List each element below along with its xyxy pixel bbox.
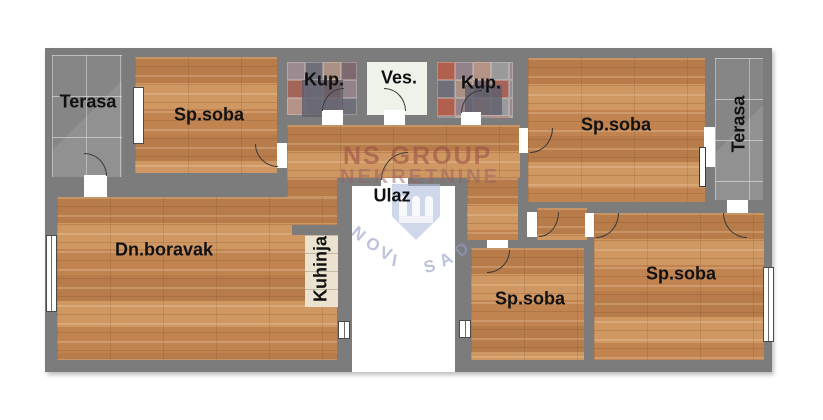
door-gap-spsoba4 [585, 213, 594, 237]
room-label-spsoba1: Sp.soba [174, 105, 244, 126]
bath-tile [437, 80, 455, 98]
bath-tile [437, 98, 455, 116]
door-gap-terasa-right [727, 200, 748, 213]
window-mullion [344, 322, 345, 338]
castle-tower-icon [412, 196, 420, 216]
window-entry-left [338, 321, 350, 339]
bath-tile [509, 116, 513, 118]
bath-tile [509, 98, 513, 116]
room-label-spsoba2: Sp.soba [581, 115, 651, 136]
room-floor-dnboravak [57, 197, 337, 360]
bath-tile [509, 62, 513, 80]
window-mullion [768, 268, 769, 341]
door-gap-spsoba2 [519, 128, 528, 153]
bath-tile [509, 80, 513, 98]
room-label-terasa-left: Terasa [60, 92, 117, 113]
window-mullion [465, 321, 466, 337]
room-label-dnboravak: Dn.boravak [115, 240, 213, 261]
balcony-door-spsoba1 [133, 87, 144, 144]
castle-base-icon [399, 216, 433, 223]
bath-tile [437, 116, 455, 118]
window-spsoba4 [763, 267, 774, 342]
kitchen-wall-stub [292, 225, 340, 235]
balcony-door-leaf-spsoba2 [699, 147, 706, 187]
room-label-ulaz: Ulaz [373, 186, 410, 207]
window-dnboravak [46, 235, 57, 312]
hallway-floor-connector [287, 178, 337, 197]
room-label-kup2: Kup. [461, 73, 501, 94]
door-gap-kup2 [461, 112, 481, 125]
floor-plan: NS GROUP NEKRETNINE Terasa Sp.soba Kup. … [0, 0, 823, 420]
door-gap-spsoba1 [277, 143, 287, 168]
bath-tile [491, 116, 509, 118]
window-entry-right [459, 320, 471, 338]
door-gap-spsoba3 [487, 240, 508, 248]
room-label-ves: Ves. [381, 68, 417, 89]
castle-tower-icon [425, 196, 433, 216]
room-label-kup1: Kup. [304, 70, 344, 91]
room-label-spsoba3: Sp.soba [495, 289, 565, 310]
door-gap-kup1 [322, 110, 343, 125]
door-gap-ves [384, 110, 405, 125]
window-mullion [51, 236, 52, 311]
room-label-terasa-right: Terasa [729, 96, 750, 153]
bath-tile [437, 62, 455, 80]
room-label-spsoba4: Sp.soba [646, 264, 716, 285]
door-gap-terasa-left [84, 175, 107, 197]
door-gap-vestibule [527, 212, 537, 237]
bath-tile [287, 62, 305, 80]
room-label-kuhinja: Kuhinja [311, 236, 332, 302]
